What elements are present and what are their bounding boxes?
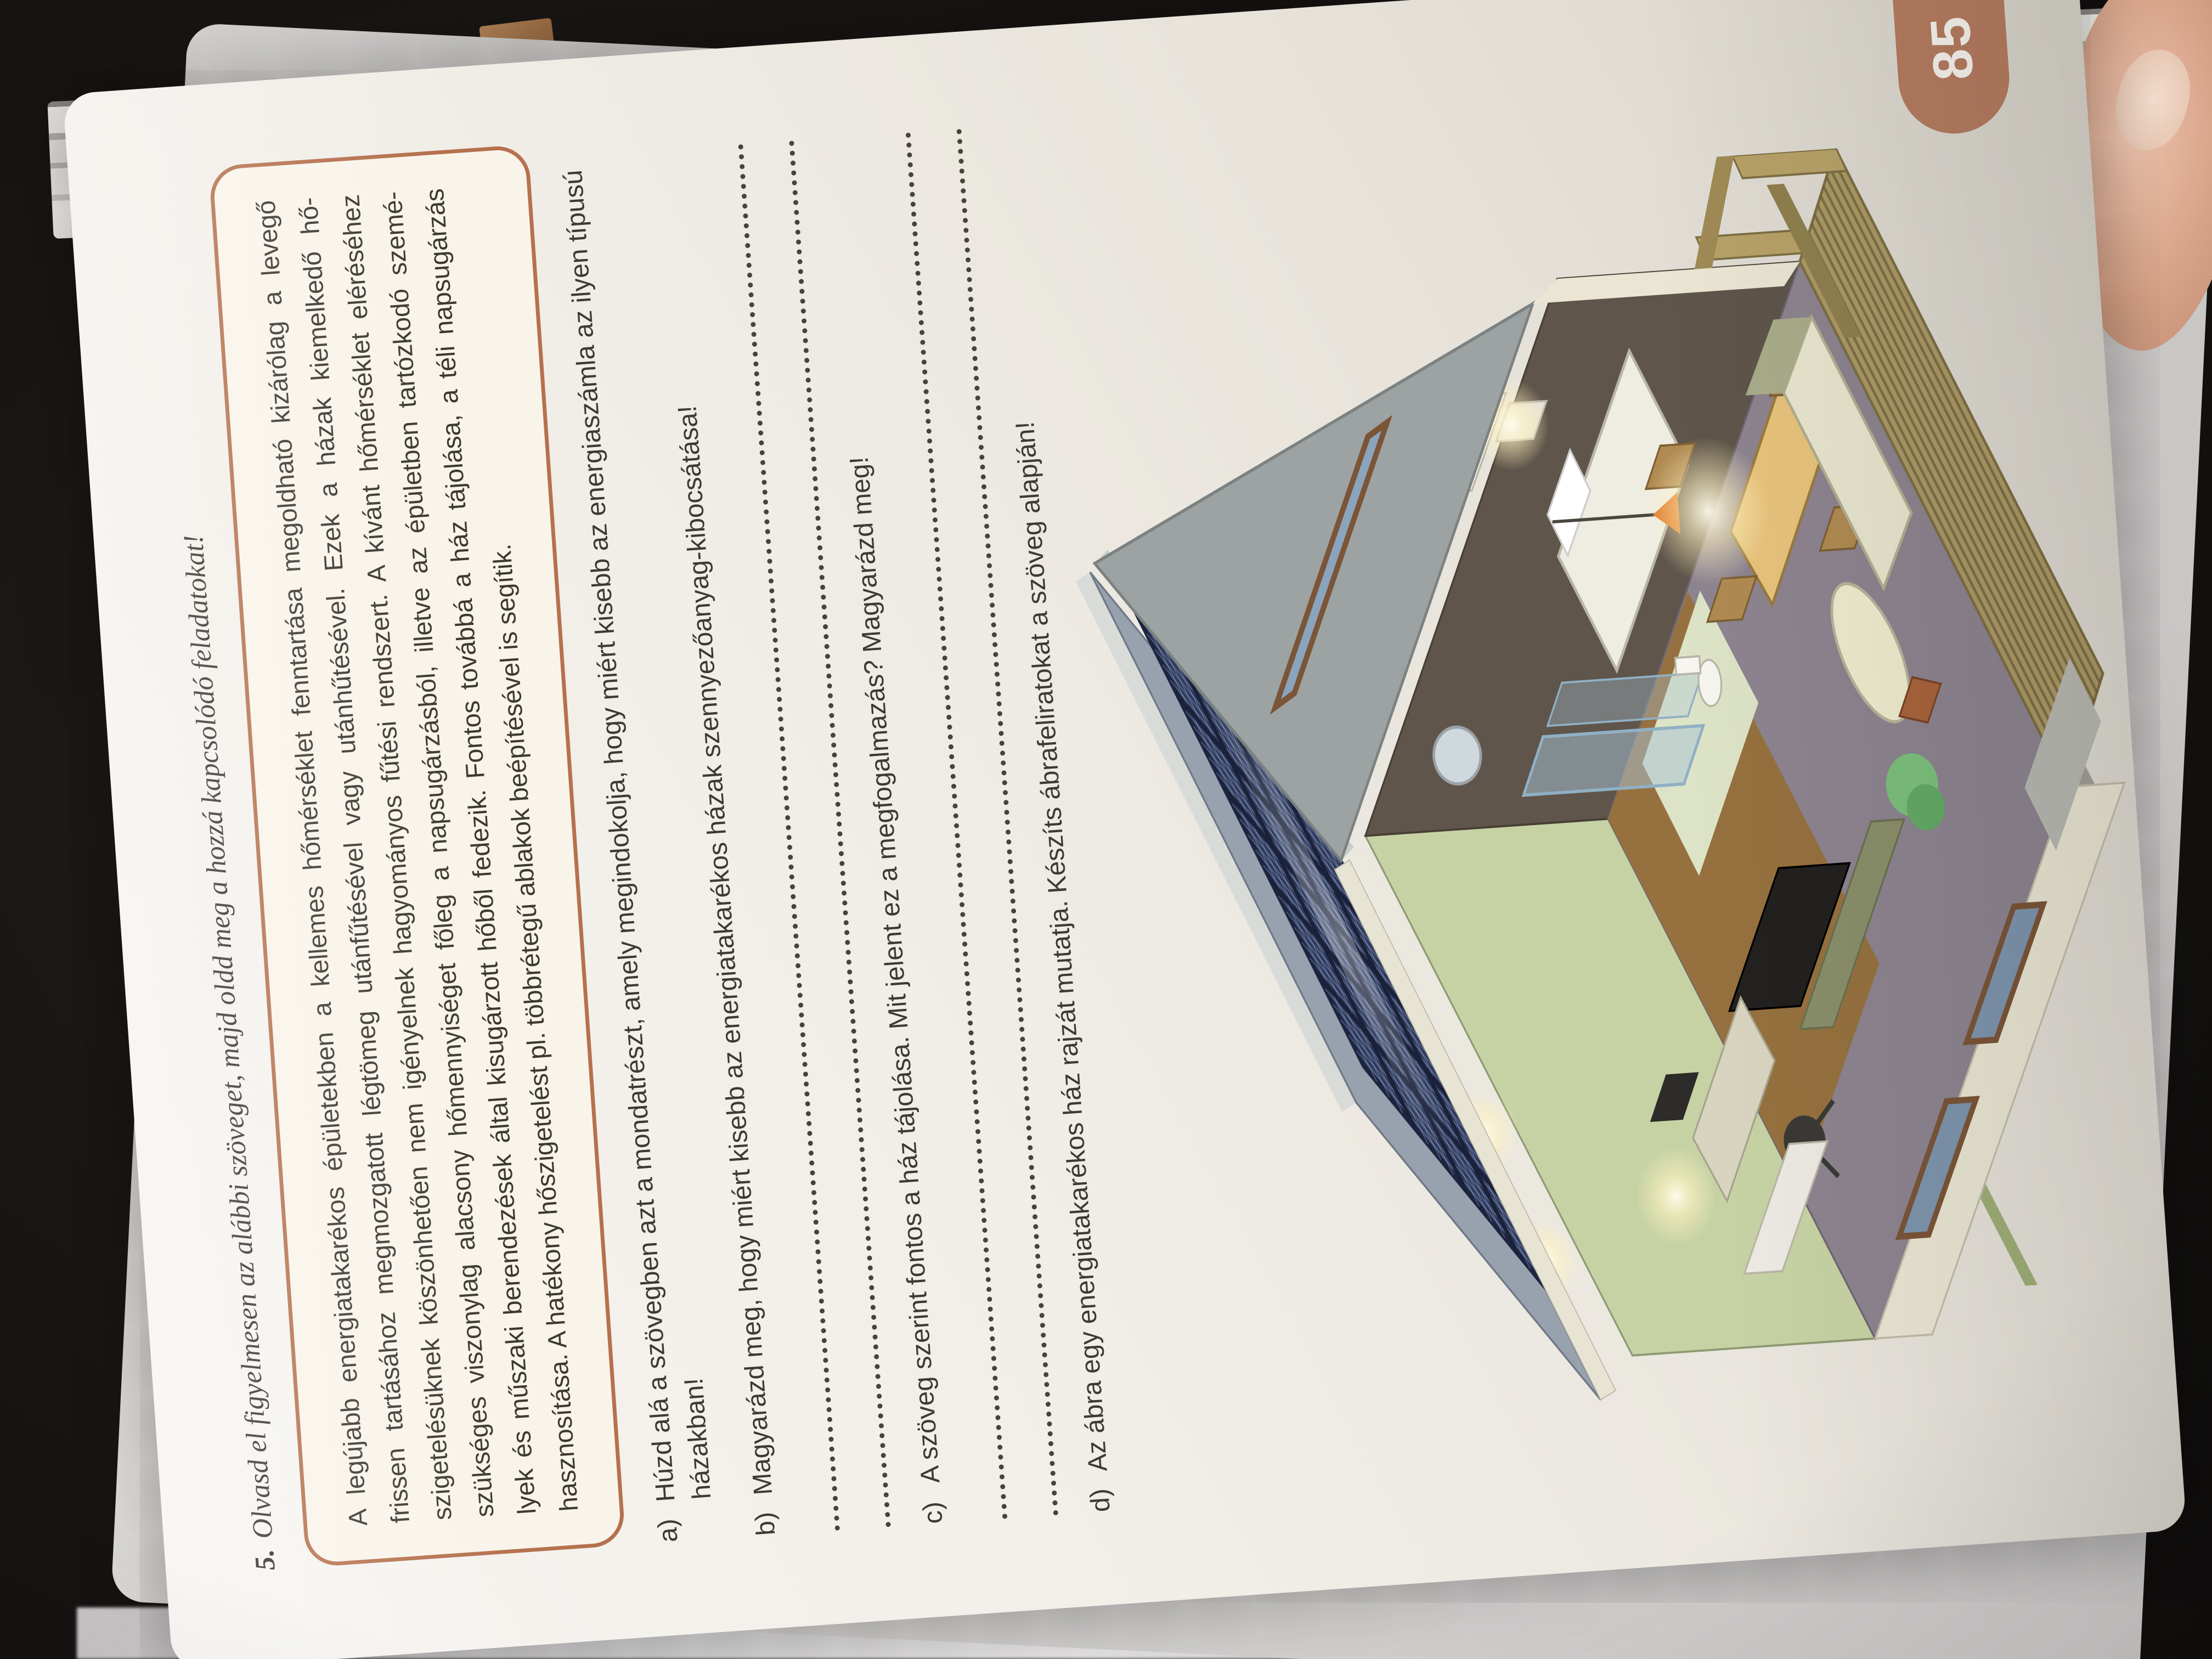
thumb-nail bbox=[2106, 42, 2200, 159]
toilet-tank bbox=[1675, 656, 1700, 675]
glass-shower bbox=[1520, 726, 1707, 795]
question-label: b) bbox=[746, 1503, 785, 1537]
task-number: 5. bbox=[247, 1548, 284, 1572]
textbook-page: 5. Olvasd el figyelmesen az alábbi szöve… bbox=[63, 0, 2187, 1659]
energy-efficient-house-cutaway bbox=[1042, 131, 2173, 1506]
house-illustration bbox=[1036, 36, 2176, 1506]
question-label: d) bbox=[1081, 1479, 1120, 1513]
reading-text-box: A legújabb energiatakarékos épületekben … bbox=[208, 144, 626, 1568]
photo-of-textbook-page: ta 5. Olvasd el figyelmesen az alábbi sz… bbox=[0, 0, 2212, 1659]
question-label: c) bbox=[914, 1491, 952, 1525]
page-number: 85 bbox=[1917, 14, 1986, 82]
question-label: a) bbox=[649, 1506, 724, 1543]
